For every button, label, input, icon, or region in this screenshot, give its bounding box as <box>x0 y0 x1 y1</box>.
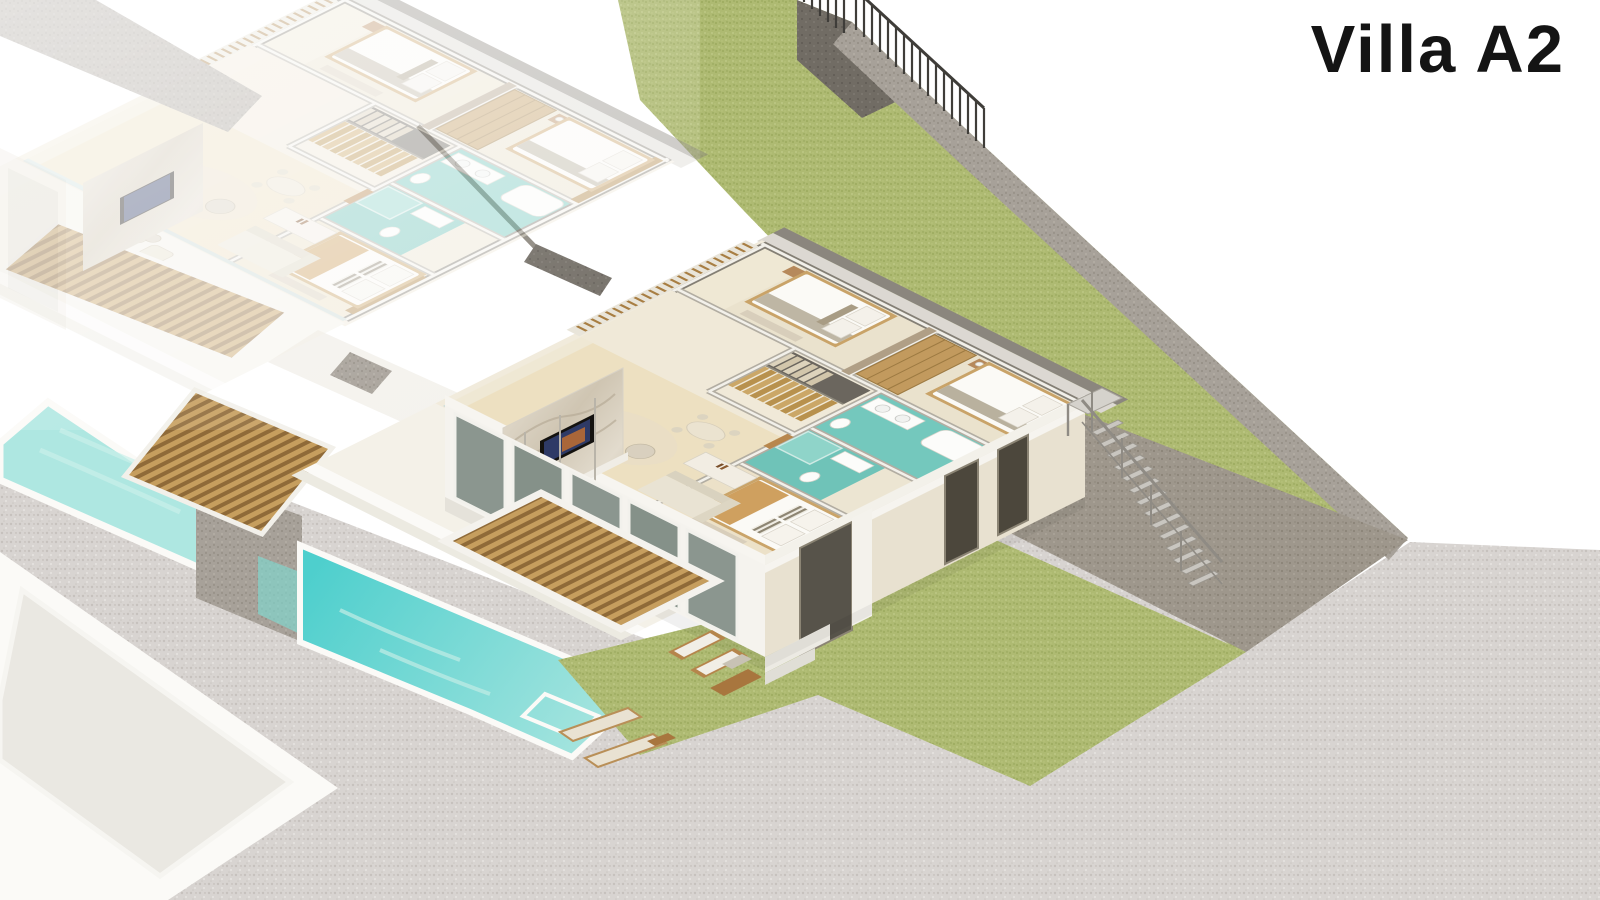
architectural-render: Villa A2 <box>0 0 1600 900</box>
window-se-1 <box>945 460 978 564</box>
window-se-2 <box>998 435 1028 535</box>
page-title: Villa A2 <box>1311 12 1565 87</box>
